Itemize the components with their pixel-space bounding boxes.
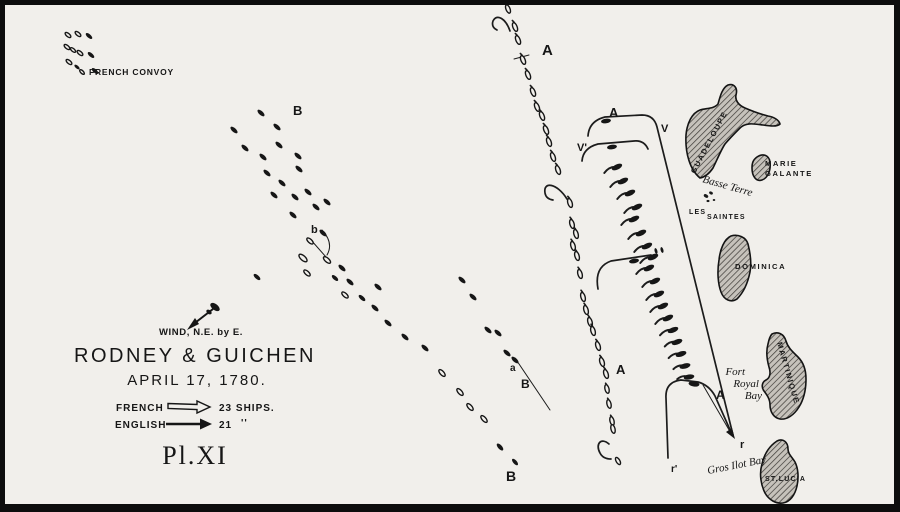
ship-mark-hollow bbox=[298, 253, 309, 263]
ship-mark-solid bbox=[400, 333, 409, 342]
basse-terre-label: Basse Terre bbox=[701, 173, 754, 199]
track-letters-layer: AAVV'BbaBBAArr' bbox=[293, 42, 745, 484]
ship-mark-hollow bbox=[74, 31, 81, 38]
track-v-prime-line bbox=[582, 141, 648, 161]
ship-mark-hollow bbox=[466, 403, 474, 412]
fort-royal-label-2: Royal bbox=[732, 378, 759, 390]
track-letter: r bbox=[740, 439, 745, 451]
st-lucia-label: ST.LUCIA bbox=[765, 476, 806, 483]
ship-mark-solid bbox=[667, 326, 679, 335]
english-ships-symbol-head bbox=[200, 419, 212, 430]
ship-mark-hollow bbox=[610, 424, 616, 434]
map-date: APRIL 17, 1780. bbox=[127, 372, 267, 389]
legend-french-count: 23 SHIPS. bbox=[219, 403, 275, 414]
ship-mark-solid bbox=[229, 126, 238, 135]
ship-mark-hollow bbox=[303, 269, 311, 277]
ship-mark-solid bbox=[679, 362, 691, 370]
track-letter: B bbox=[521, 377, 530, 391]
ship-mark-solid bbox=[303, 188, 312, 197]
ship-mark-hollow bbox=[549, 152, 556, 162]
ship-mark-hollow bbox=[456, 388, 464, 397]
track-letter: a bbox=[510, 363, 516, 374]
ship-mark-hollow bbox=[341, 291, 349, 299]
ship-mark-solid bbox=[358, 294, 367, 302]
les-saintes-label-2: SAINTES bbox=[707, 214, 746, 221]
ship-mark-solid bbox=[496, 442, 505, 451]
ship-mark-solid bbox=[457, 276, 466, 285]
wind-label: WIND, N.E. by E. bbox=[159, 327, 243, 338]
ship-mark-hollow bbox=[538, 111, 545, 121]
gros-ilot-label: Gros Ilot Bay bbox=[706, 454, 767, 477]
ship-mark-hollow bbox=[554, 165, 561, 175]
ship-mark-solid bbox=[647, 252, 659, 261]
legend-symbols bbox=[166, 401, 212, 430]
ship-mark-solid bbox=[240, 144, 249, 153]
ship-mark-hollow bbox=[614, 457, 621, 466]
ship-mark-hollow bbox=[590, 326, 597, 336]
island-les-saintes bbox=[703, 191, 715, 202]
legend-english-label: ENGLISH bbox=[115, 420, 166, 431]
ship-mark-hollow bbox=[542, 125, 549, 135]
french-ships-symbol bbox=[168, 401, 210, 413]
ship-mark-solid bbox=[74, 64, 81, 70]
ship-mark-solid bbox=[277, 179, 286, 188]
legend-english-ditto: '' bbox=[241, 418, 248, 429]
ship-mark-solid bbox=[290, 193, 299, 202]
track-chain-mid-hook bbox=[545, 185, 567, 200]
island-st-lucia bbox=[761, 440, 798, 503]
ship-mark-hollow bbox=[595, 341, 602, 351]
ship-mark-hollow bbox=[567, 198, 574, 208]
track-letter: A bbox=[609, 105, 619, 120]
wind-arrow bbox=[187, 301, 221, 330]
legend-english-count: 21 bbox=[219, 420, 232, 431]
ship-mark-hollow bbox=[438, 369, 446, 378]
ship-mark-solid bbox=[274, 141, 283, 150]
ship-mark-hollow bbox=[603, 369, 610, 379]
ship-mark-hollow bbox=[70, 47, 77, 53]
track-letter: A bbox=[716, 388, 725, 402]
ship-mark-solid bbox=[511, 458, 519, 466]
fort-royal-label-1: Fort bbox=[724, 366, 746, 378]
tracks-layer bbox=[311, 17, 735, 459]
ship-mark-hollow bbox=[514, 35, 521, 45]
ship-mark-solid bbox=[683, 374, 694, 381]
ship-mark-hollow bbox=[577, 269, 584, 279]
french-convoy-label: FRENCH CONVOY bbox=[89, 67, 174, 77]
track-r-arrowhead bbox=[726, 428, 735, 439]
ship-mark-hollow bbox=[580, 292, 587, 302]
ship-mark-hollow bbox=[76, 50, 83, 57]
ship-mark-solid bbox=[373, 283, 382, 292]
ship-mark-hollow bbox=[79, 69, 85, 75]
ship-mark-solid bbox=[654, 248, 658, 255]
ship-mark-hollow bbox=[64, 32, 71, 39]
track-letter: B bbox=[293, 103, 302, 118]
ship-mark-hollow bbox=[524, 70, 531, 80]
dominica-label: DOMINICA bbox=[735, 262, 786, 271]
ship-mark-solid bbox=[649, 276, 661, 285]
ship-mark-hollow bbox=[480, 415, 488, 424]
ship-mark-solid bbox=[607, 144, 618, 150]
ship-mark-solid bbox=[370, 304, 379, 313]
battle-map: AAVV'BbaBBAArr' FRENCH CONVOY WIND, N.E.… bbox=[5, 5, 894, 504]
track-chain-bottom-hook bbox=[598, 441, 611, 459]
ship-mark-solid bbox=[657, 301, 669, 310]
ship-mark-hollow bbox=[529, 87, 536, 97]
ship-mark-solid bbox=[256, 109, 265, 118]
marie-galante-label-1: MARIE bbox=[765, 159, 797, 168]
ship-mark-solid bbox=[253, 273, 262, 281]
track-letter: V' bbox=[577, 142, 587, 154]
ship-mark-hollow bbox=[573, 229, 580, 239]
track-letter: V bbox=[661, 123, 669, 135]
ship-mark-hollow bbox=[545, 137, 552, 147]
ship-mark-solid bbox=[641, 241, 653, 250]
ship-mark-solid bbox=[288, 211, 297, 220]
ship-mark-solid bbox=[671, 338, 683, 347]
track-letter: B bbox=[506, 468, 516, 484]
ship-mark-hollow bbox=[583, 305, 590, 315]
track-letter: b bbox=[311, 224, 318, 236]
ship-mark-hollow bbox=[306, 237, 314, 245]
track-letter: A bbox=[616, 362, 626, 377]
ship-mark-hollow bbox=[599, 357, 606, 367]
ship-mark-solid bbox=[483, 326, 492, 335]
track-letter: A bbox=[542, 42, 553, 59]
ship-mark-hollow bbox=[511, 22, 518, 32]
ship-mark-solid bbox=[294, 165, 303, 174]
ship-mark-solid bbox=[420, 344, 429, 353]
ship-mark-solid bbox=[631, 202, 643, 211]
ship-mark-solid bbox=[85, 32, 93, 40]
ship-mark-solid bbox=[643, 263, 655, 272]
ship-mark-solid bbox=[331, 274, 339, 282]
ship-mark-solid bbox=[660, 247, 664, 254]
ship-mark-solid bbox=[337, 264, 346, 273]
track-letter: r' bbox=[671, 464, 677, 475]
ship-mark-solid bbox=[675, 350, 687, 358]
map-title: RODNEY & GUICHEN bbox=[74, 345, 316, 367]
ship-mark-solid bbox=[258, 153, 267, 162]
ship-mark-solid bbox=[662, 313, 674, 322]
ship-mark-solid bbox=[493, 329, 502, 338]
ship-mark-solid bbox=[293, 152, 302, 161]
legend-french-label: FRENCH bbox=[116, 403, 164, 414]
marie-galante-label-2: GALANTE bbox=[765, 169, 813, 178]
ship-mark-solid bbox=[502, 349, 511, 358]
map-frame: AAVV'BbaBBAArr' FRENCH CONVOY WIND, N.E.… bbox=[0, 0, 900, 512]
ship-mark-solid bbox=[311, 203, 320, 212]
les-saintes-label-1: LES bbox=[689, 209, 706, 216]
ship-mark-solid bbox=[617, 176, 629, 185]
ship-mark-hollow bbox=[606, 399, 612, 409]
ship-mark-hollow bbox=[604, 384, 610, 394]
ship-mark-solid bbox=[322, 198, 331, 207]
ship-mark-solid bbox=[262, 169, 271, 178]
track-chain-top-hook bbox=[493, 17, 511, 31]
fort-royal-label-3: Bay bbox=[745, 390, 762, 402]
ship-mark-solid bbox=[468, 293, 477, 302]
ship-mark-hollow bbox=[519, 55, 526, 65]
ship-mark-solid bbox=[269, 191, 278, 200]
ship-mark-solid bbox=[628, 214, 640, 223]
ship-mark-solid bbox=[653, 289, 665, 298]
ship-mark-solid bbox=[624, 188, 636, 197]
ship-mark-solid bbox=[272, 123, 281, 132]
ship-mark-solid bbox=[611, 162, 623, 171]
ship-mark-solid bbox=[87, 51, 95, 59]
ship-mark-hollow bbox=[63, 44, 70, 51]
ship-mark-solid bbox=[635, 228, 647, 237]
ship-mark-solid bbox=[383, 319, 392, 328]
plate-number: Pl.XI bbox=[162, 441, 228, 470]
ship-mark-solid bbox=[345, 278, 354, 287]
ship-mark-hollow bbox=[574, 251, 581, 261]
ship-mark-hollow bbox=[65, 59, 72, 66]
ship-mark-hollow bbox=[504, 5, 511, 14]
ship-mark-hollow bbox=[322, 256, 331, 265]
